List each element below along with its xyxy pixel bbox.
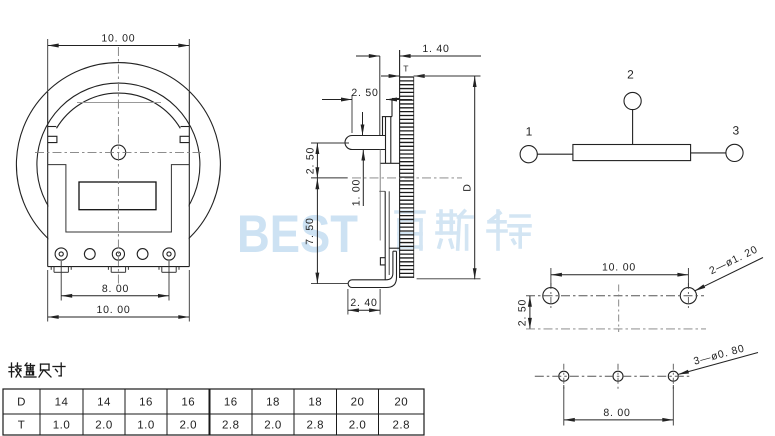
svg-text:20: 20 <box>394 397 408 409</box>
svg-text:2. 50: 2. 50 <box>305 147 317 174</box>
svg-text:8. 00: 8. 00 <box>102 283 129 295</box>
svg-text:16: 16 <box>181 397 195 409</box>
svg-text:18: 18 <box>266 397 280 409</box>
svg-text:T: T <box>403 64 408 74</box>
svg-text:2. 50: 2. 50 <box>517 299 529 326</box>
svg-text:2.8: 2.8 <box>222 420 240 432</box>
svg-text:14: 14 <box>97 397 111 409</box>
svg-text:1. 00: 1. 00 <box>351 179 363 206</box>
svg-text:1. 40: 1. 40 <box>422 43 449 55</box>
svg-text:2.0: 2.0 <box>95 420 113 432</box>
svg-text:16: 16 <box>224 397 238 409</box>
svg-text:T: T <box>18 420 26 432</box>
svg-text:BEST: BEST <box>237 205 358 264</box>
svg-text:10. 00: 10. 00 <box>97 304 131 316</box>
svg-text:2. 40: 2. 40 <box>350 297 377 309</box>
svg-text:7. 50: 7. 50 <box>304 217 316 244</box>
svg-text:2.8: 2.8 <box>393 420 411 432</box>
svg-text:1: 1 <box>526 125 533 139</box>
svg-text:D: D <box>462 183 474 191</box>
svg-text:D: D <box>17 397 26 409</box>
svg-text:20: 20 <box>351 397 365 409</box>
svg-text:2.0: 2.0 <box>180 420 198 432</box>
svg-text:3: 3 <box>732 124 739 138</box>
svg-text:1.0: 1.0 <box>53 420 71 432</box>
svg-text:2.0: 2.0 <box>264 420 282 432</box>
svg-text:10. 00: 10. 00 <box>602 262 636 274</box>
svg-text:2.0: 2.0 <box>349 420 367 432</box>
svg-text:18: 18 <box>308 397 322 409</box>
svg-text:2. 50: 2. 50 <box>351 87 378 99</box>
svg-text:14: 14 <box>55 397 69 409</box>
svg-text:2: 2 <box>627 68 634 82</box>
svg-text:16: 16 <box>139 397 153 409</box>
svg-text:8. 00: 8. 00 <box>603 407 630 419</box>
svg-text:10. 00: 10. 00 <box>101 33 135 45</box>
svg-text:1.0: 1.0 <box>137 420 155 432</box>
svg-text:2.8: 2.8 <box>307 420 325 432</box>
